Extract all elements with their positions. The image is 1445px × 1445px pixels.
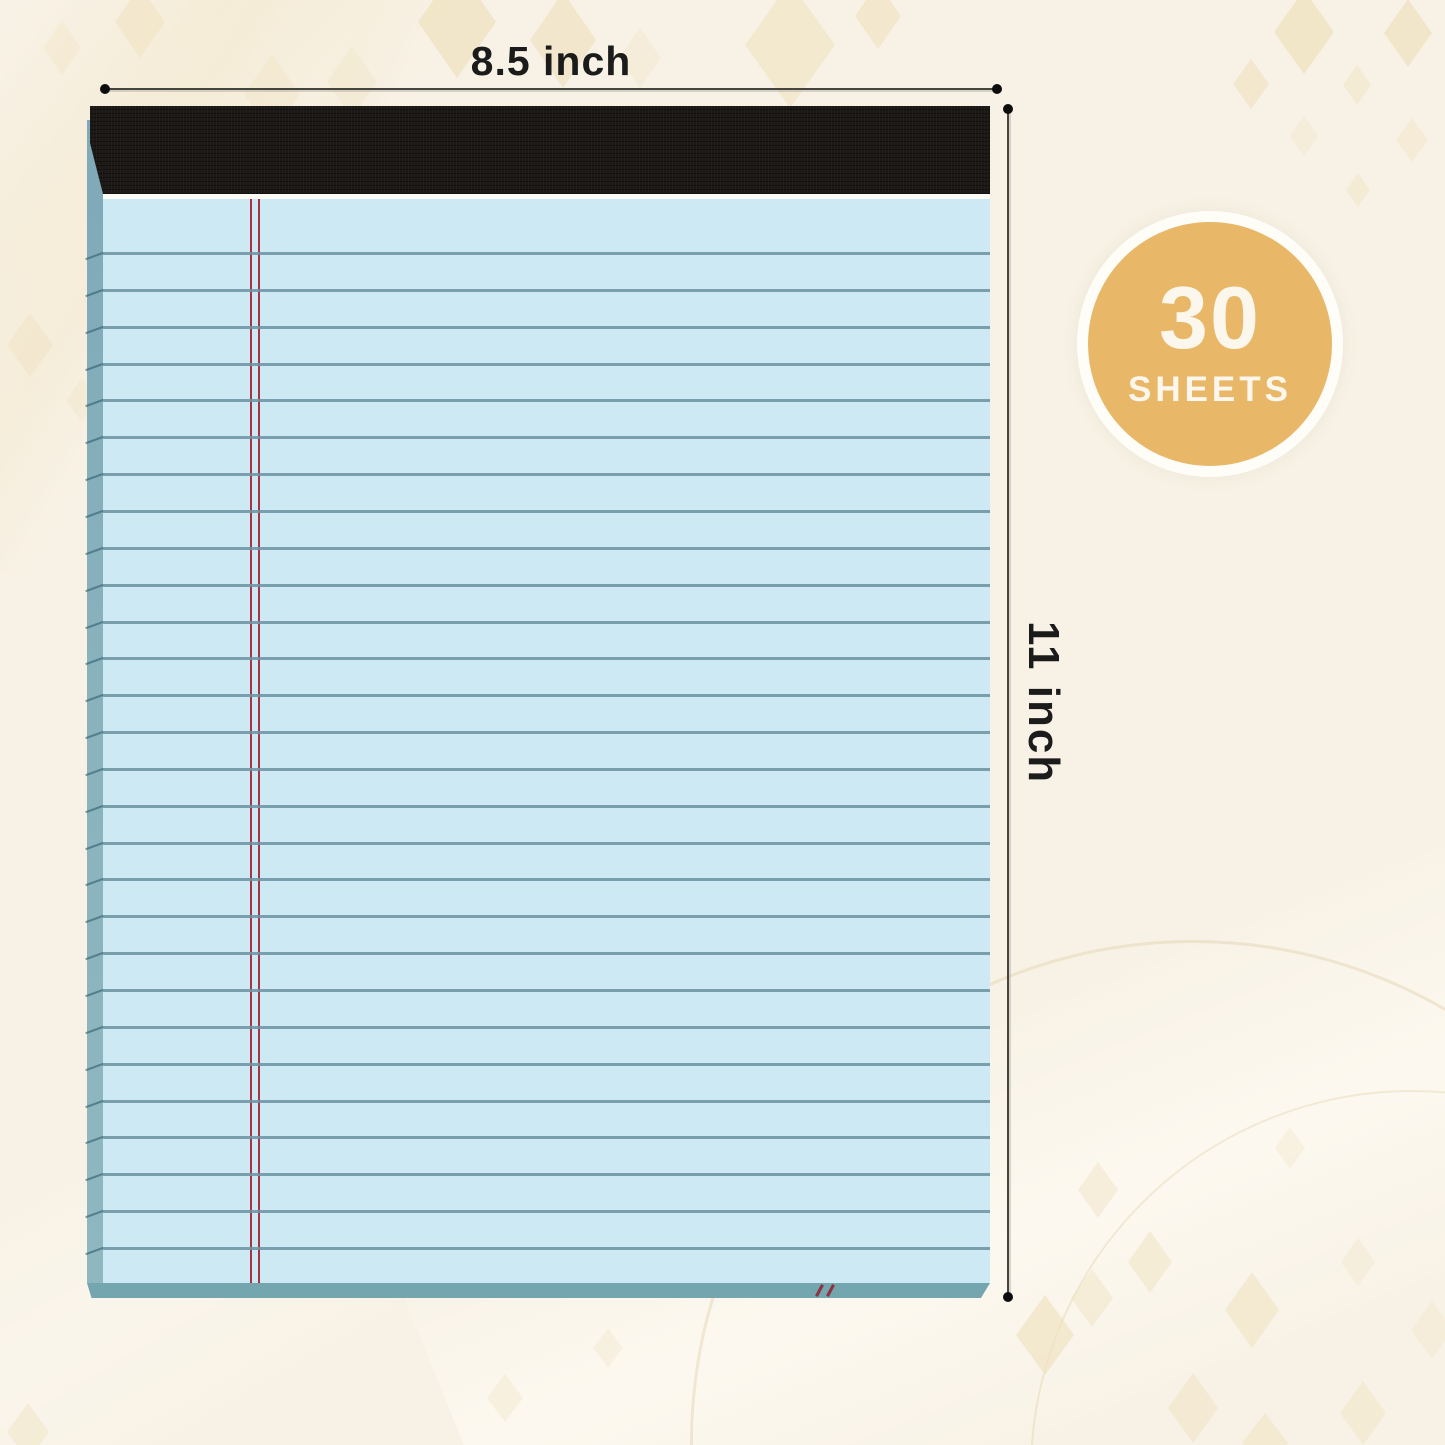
spine-sheet-notch [85, 399, 104, 407]
ruled-line [103, 584, 990, 587]
ruled-line [103, 621, 990, 624]
ruled-line [103, 252, 990, 255]
ruled-line [103, 1173, 990, 1176]
sheet-count-badge: 30 SHEETS [1077, 211, 1343, 477]
spine-sheet-notch [85, 1136, 104, 1144]
ruled-line [103, 915, 990, 918]
diamond-shape [1384, 0, 1432, 67]
ruled-line [103, 1136, 990, 1139]
spine-sheet-notch [85, 768, 104, 776]
spine-sheet-notch [85, 1026, 104, 1034]
spine-sheet-notch [85, 583, 104, 591]
diamond-shape [1274, 0, 1334, 74]
width-dimension-line [103, 88, 999, 90]
ruled-line [103, 1063, 990, 1066]
spine-sheet-notch [85, 731, 104, 739]
ruled-line [103, 842, 990, 845]
ruled-line [103, 805, 990, 808]
spine-sheet-notch [85, 289, 104, 297]
height-dimension-label-wrap: 11 inch [1018, 107, 1088, 1299]
ruled-line [103, 363, 990, 366]
spine-sheet-notch [85, 510, 104, 518]
spine-sheet-notch [85, 1247, 104, 1255]
ruled-line [103, 952, 990, 955]
spine-sheet-notch [85, 694, 104, 702]
diamond-shape [1346, 173, 1370, 207]
spine-sheet-notch [85, 436, 104, 444]
spine-sheet-notch [85, 252, 104, 260]
ruled-line [103, 399, 990, 402]
ruled-line [103, 989, 990, 992]
red-margin-edge-mark [815, 1284, 824, 1297]
pad-sheet-stack-edge [87, 1283, 990, 1298]
product-showcase: 8.5 inch 11 inch 30 SHEETS [0, 0, 1445, 1445]
spine-sheet-notch [85, 952, 104, 960]
ruled-line [103, 1100, 990, 1103]
pad-binding-strip [90, 106, 990, 194]
ruled-line [103, 547, 990, 550]
height-dimension-label: 11 inch [1018, 621, 1068, 784]
spine-sheet-notch [85, 841, 104, 849]
spine-sheet-notch [85, 915, 104, 923]
sheet-count-number: 30 [1159, 278, 1261, 357]
legal-pad [87, 106, 990, 1298]
width-dimension-label: 8.5 inch [103, 38, 999, 85]
ruled-line [103, 1026, 990, 1029]
ruled-line [103, 657, 990, 660]
spine-sheet-notch [85, 620, 104, 628]
spine-sheet-notch [85, 805, 104, 813]
ruled-line [103, 436, 990, 439]
ruled-line [103, 1210, 990, 1213]
ruled-line [103, 731, 990, 734]
first-sheet-edge-highlight [103, 194, 990, 199]
spine-sheet-notch [85, 1173, 104, 1181]
pad-spine [87, 120, 103, 1283]
red-margin-edge-mark [826, 1284, 835, 1297]
ruled-line [103, 878, 990, 881]
spine-sheet-notch [85, 547, 104, 555]
spine-sheet-notch [85, 878, 104, 886]
diamond-shape [1233, 59, 1269, 109]
ruled-line [103, 1247, 990, 1250]
ruled-line [103, 326, 990, 329]
ruled-line [103, 289, 990, 292]
spine-sheet-notch [85, 1062, 104, 1070]
ruled-line [103, 510, 990, 513]
ruled-line [103, 768, 990, 771]
diamond-shape [1290, 116, 1318, 156]
spine-sheet-notch [85, 1099, 104, 1107]
spine-sheet-notch [85, 325, 104, 333]
spine-sheet-notch [85, 473, 104, 481]
spine-sheet-notch [85, 657, 104, 665]
ruled-line [103, 694, 990, 697]
spine-sheet-notch [85, 1210, 104, 1218]
diamond-shape [1396, 118, 1428, 162]
ruled-line [103, 473, 990, 476]
spine-sheet-notch [85, 989, 104, 997]
pad-paper [103, 199, 990, 1283]
spine-sheet-notch [85, 362, 104, 370]
sheet-count-unit: SHEETS [1128, 370, 1292, 410]
height-dimension-line [1007, 107, 1009, 1299]
diamond-shape [1343, 65, 1371, 105]
